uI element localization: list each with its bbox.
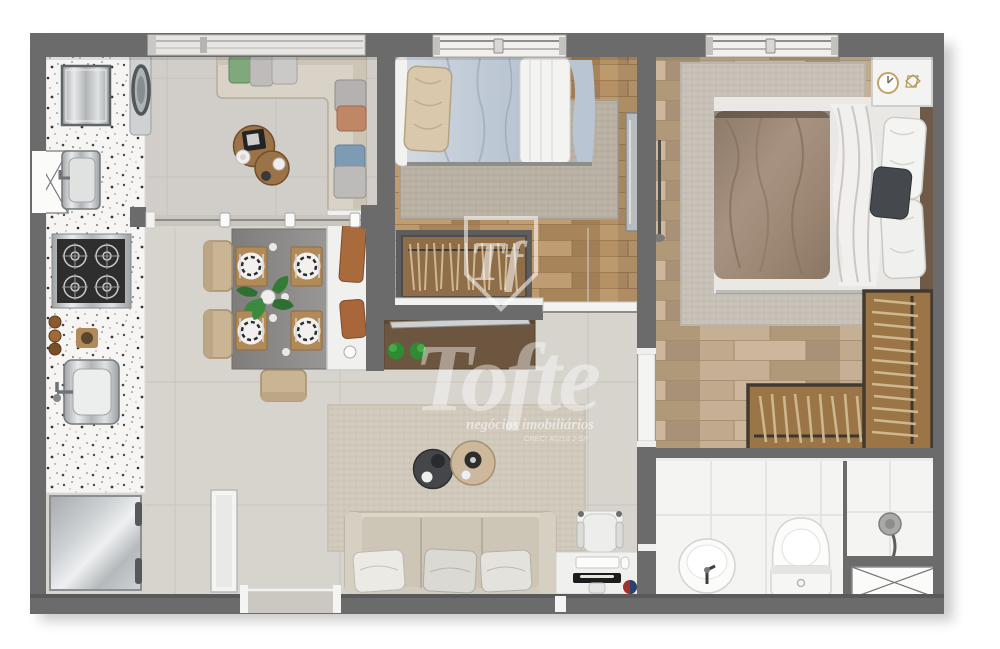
svg-text:CRECI 40218 J-SP: CRECI 40218 J-SP	[524, 434, 589, 443]
svg-text:Tf: Tf	[470, 231, 528, 293]
svg-text:Tofte: Tofte	[414, 324, 599, 431]
svg-text:negócios imobiliários: negócios imobiliários	[466, 417, 594, 433]
